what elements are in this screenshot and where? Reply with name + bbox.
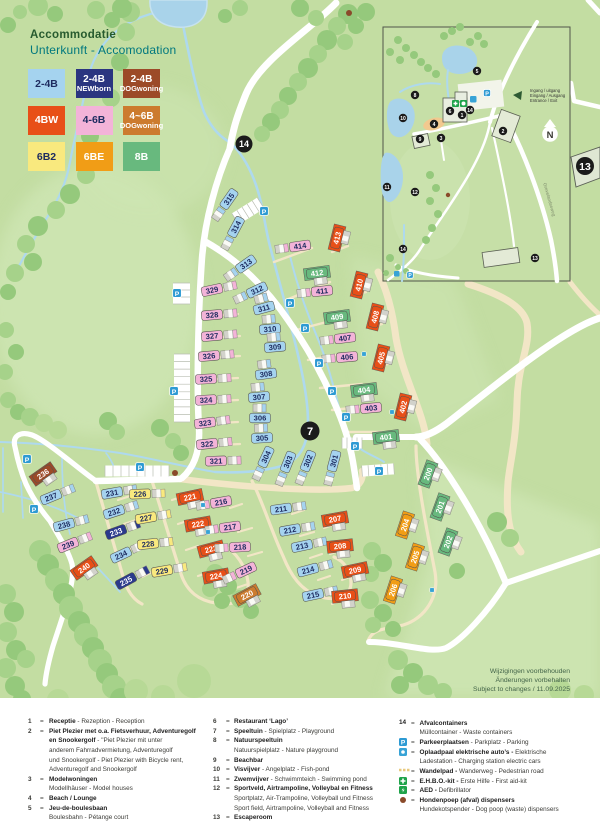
svg-text:P: P (401, 739, 406, 746)
